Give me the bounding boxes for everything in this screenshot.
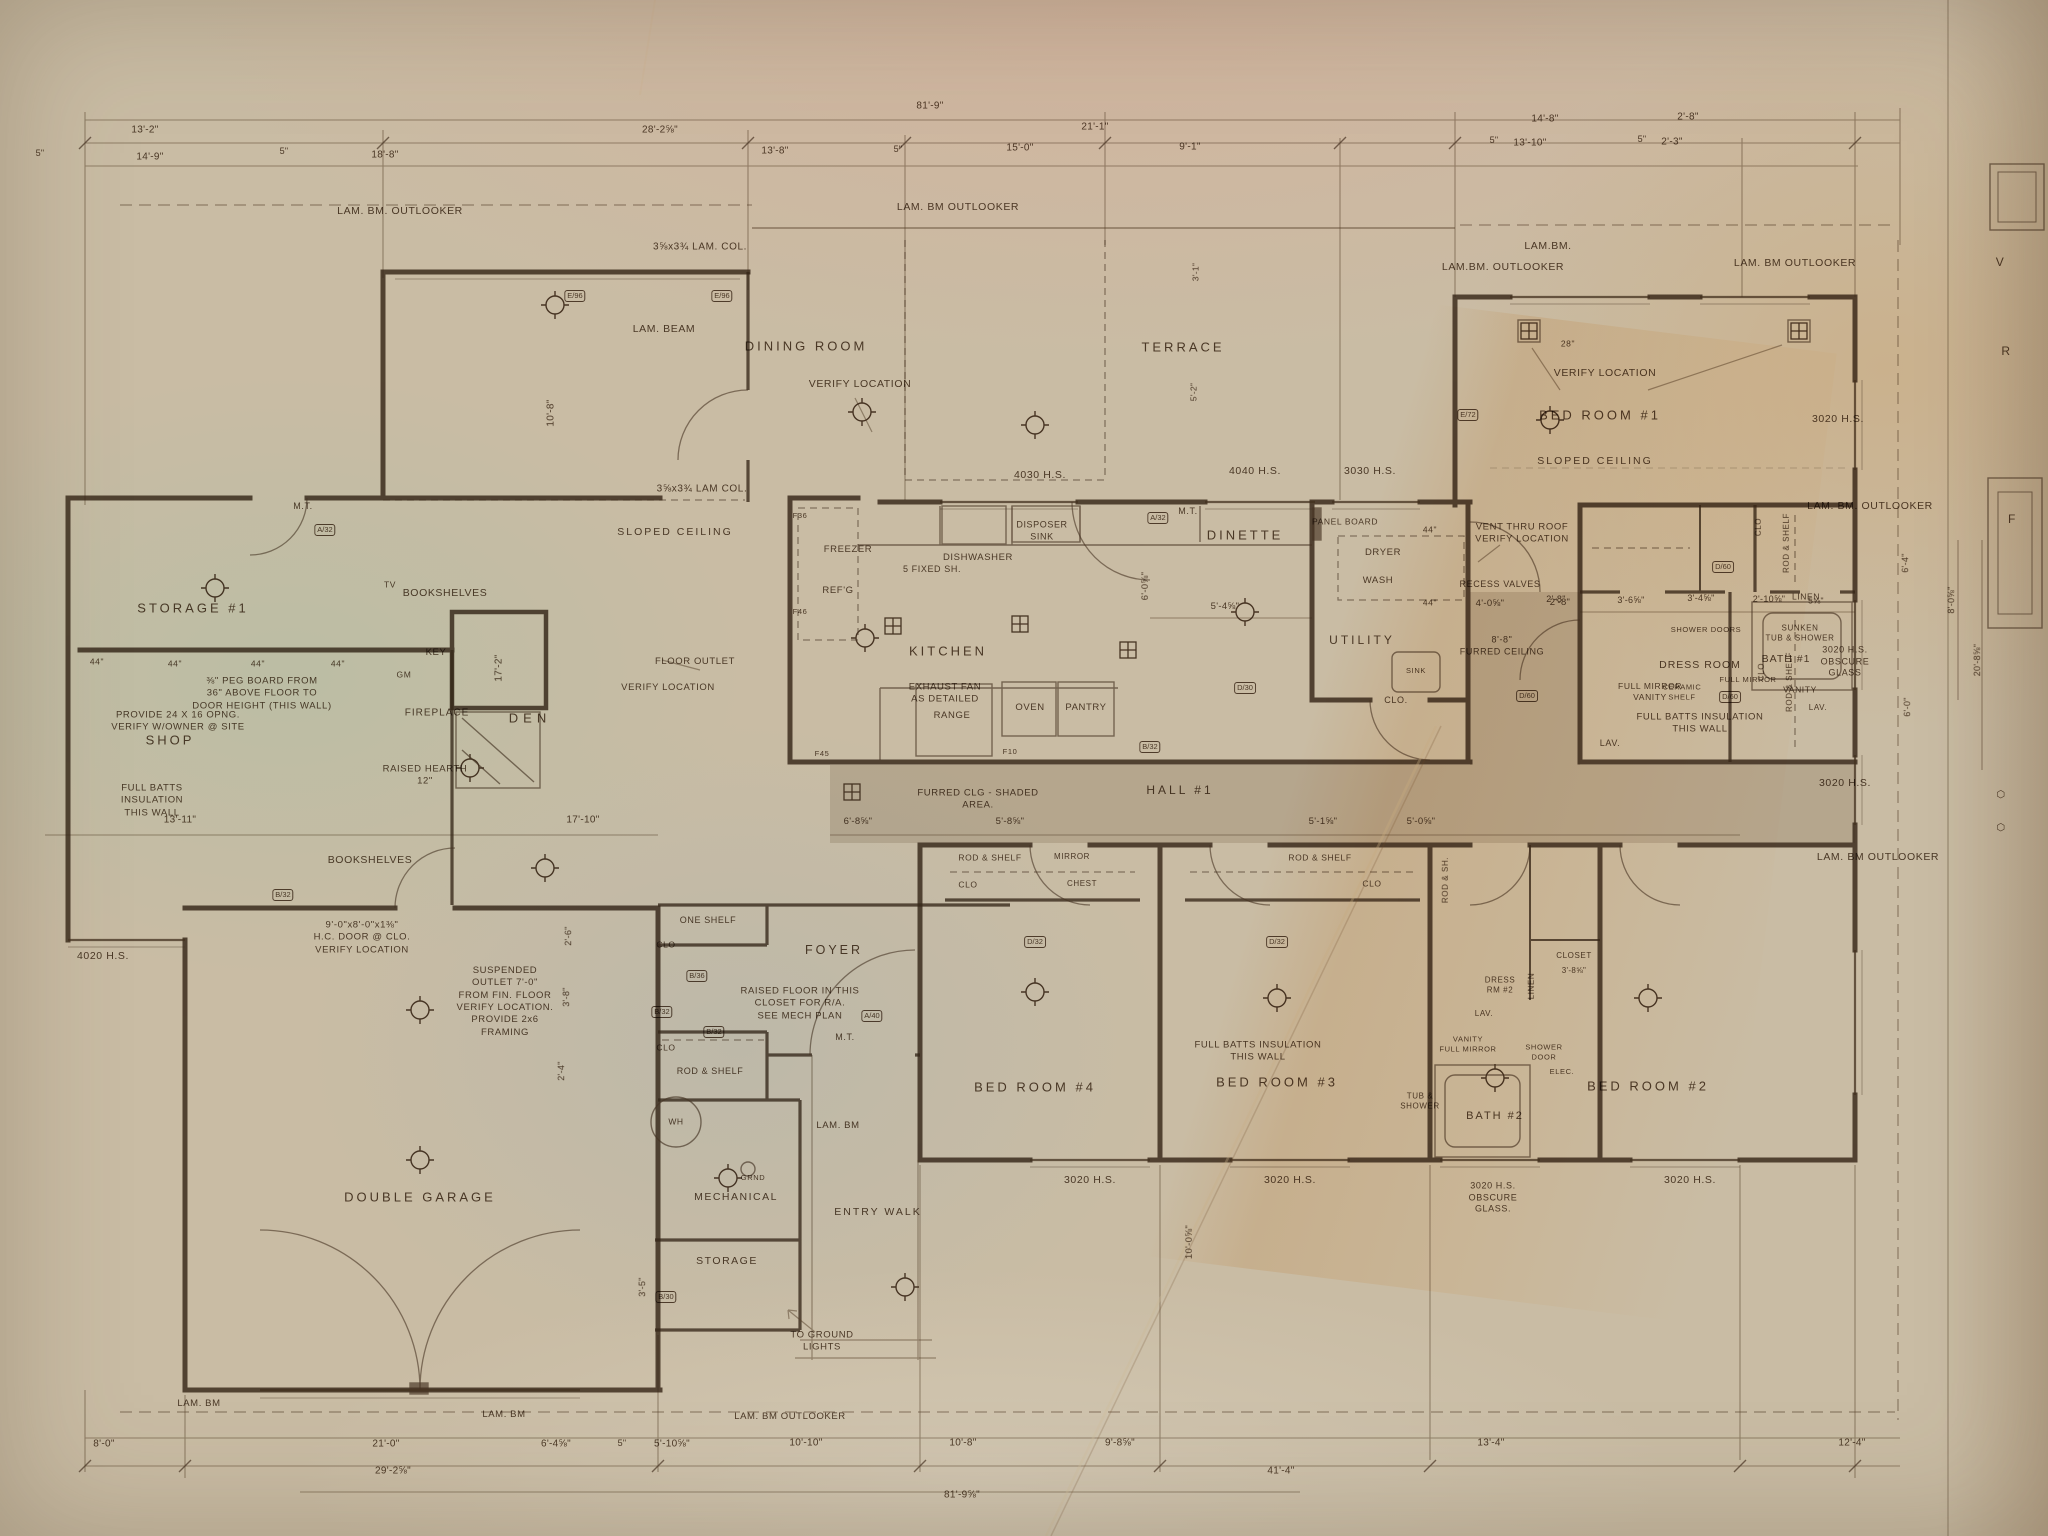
blueprint-sheet: 81'-9"13'-2"28'-2⅝"21'-1"14'-8"2'-8"14'-… [0, 0, 2048, 1536]
plan-label: CLO. [1384, 695, 1407, 707]
plan-label: LAM. BM [482, 1409, 525, 1421]
plan-label: FULL MIRROR [1719, 675, 1776, 685]
fixture-tag: D/60 [1516, 690, 1538, 702]
plan-label: FLOOR OUTLET [655, 656, 735, 668]
plan-label: CLO [656, 939, 675, 950]
plan-label: CLO [656, 1042, 675, 1053]
plan-label: M.T. [293, 501, 312, 513]
plan-label: ROD & SHELF [958, 852, 1021, 863]
plan-label: 2'-3" [1661, 136, 1682, 149]
plan-label: ONE SHELF [680, 915, 736, 927]
plan-label: 5'-10⅝" [654, 1438, 690, 1451]
fixture-tag: E/96 [711, 290, 732, 302]
fixture-tag: B/36 [686, 970, 707, 982]
fixture-tag: E/96 [564, 290, 585, 302]
plan-label: 3'-1" [1190, 263, 1201, 281]
plan-label: 21'-0" [372, 1438, 399, 1451]
plan-label: 10'-8" [545, 399, 558, 426]
plan-label: VERIFY LOCATION [809, 378, 912, 392]
room-label-storage1: STORAGE #1 [137, 601, 248, 618]
plan-label: RECESS VALVES [1460, 579, 1541, 591]
plan-label: 6'-8⅝" [844, 816, 873, 828]
room-label-shop: SHOP [146, 733, 195, 750]
plan-label: VENT THRU ROOF VERIFY LOCATION [1475, 522, 1569, 547]
plan-label: ⬡ [1996, 822, 2005, 835]
plan-label: 5'-0⅝" [1407, 816, 1436, 828]
fixture-tag: D/60 [1719, 691, 1741, 703]
plan-label: FULL BATTS INSULATION THIS WALL [1195, 1040, 1322, 1065]
plan-label: 4040 H.S. [1229, 465, 1281, 479]
plan-label: CLOSET [1556, 951, 1592, 961]
plan-label: REF'G [822, 585, 853, 597]
plan-label: 3'-5" [637, 1277, 649, 1296]
room-label-utility: UTILITY [1329, 633, 1395, 649]
plan-label: 28" [1561, 338, 1575, 349]
plan-label: 5'-2" [1188, 383, 1199, 401]
plan-label: MIRROR [1054, 852, 1090, 862]
plan-label: VERIFY LOCATION [621, 682, 715, 694]
water-heater-label: WH [668, 1116, 683, 1127]
plan-label: CLO [958, 879, 977, 890]
plan-label: LAM.BM. OUTLOOKER [1442, 261, 1564, 275]
plan-label: SUNKEN TUB & SHOWER [1766, 624, 1835, 645]
plan-label: VANITY FULL MIRROR [1439, 1034, 1496, 1054]
plan-label: 4020 H.S. [77, 950, 129, 964]
plan-label: FREEZER [824, 544, 873, 556]
dim-overall-bottom: 81'-9⅝" [944, 1489, 980, 1502]
plan-label: DRESS RM #2 [1485, 976, 1516, 997]
plan-label: PANTRY [1065, 702, 1106, 714]
room-label-bath1: BATH #1 [1762, 653, 1811, 667]
plan-label: 5'-8⅝" [996, 816, 1025, 828]
plan-label: ROD & SHELF [1782, 513, 1792, 573]
plan-label: BOOKSHELVES [328, 854, 413, 868]
plan-label: PROVIDE 24 X 16 OPNG. VERIFY W/OWNER @ S… [111, 710, 244, 735]
plan-label: F36 [793, 511, 808, 521]
plan-label: DISHWASHER [943, 552, 1013, 564]
plan-label: LAM. BM. OUTLOOKER [1807, 500, 1933, 514]
plan-label: 6'-4" [1900, 553, 1912, 572]
plan-label: 6'-0" [1902, 697, 1914, 716]
fixture-tag: B/32 [1139, 741, 1160, 753]
plan-label: OVEN [1015, 702, 1044, 714]
plan-label: 14'-9" [136, 151, 163, 164]
plan-label: BOOKSHELVES [403, 587, 488, 601]
plan-label: ELEC. [1550, 1067, 1575, 1077]
plan-label: 12'-4" [1838, 1437, 1865, 1450]
plan-label: 5" [1638, 134, 1647, 146]
plan-label: SLOPED CEILING [1537, 455, 1653, 469]
room-label-bath2: BATH #2 [1466, 1109, 1524, 1123]
plan-label: 3020 H.S. [1264, 1174, 1316, 1188]
plan-label: 5" [618, 1438, 627, 1450]
plan-label: FULL BATTS INSULATION THIS WALL [1637, 712, 1764, 737]
plan-label: ROD & SH. [1441, 857, 1451, 903]
plan-label: TUB & SHOWER [1400, 1092, 1440, 1113]
plan-label: 3020 H.S. [1812, 413, 1864, 427]
plan-label: 17'-10" [566, 814, 599, 827]
plan-label: ⬡ [1996, 789, 2005, 802]
plan-label: 44" [168, 658, 182, 669]
plan-label: 3'-4⅝" [1687, 593, 1714, 605]
plan-label: LINEN [1527, 973, 1537, 1000]
plan-label: 5'-1⅝" [1309, 816, 1338, 828]
plan-label: 3020 H.S. [1819, 777, 1871, 791]
plan-label: F45 [815, 749, 830, 759]
room-label-bedroom4: BED ROOM #4 [974, 1080, 1096, 1097]
plan-label: 15'-0" [1006, 142, 1033, 155]
plan-label: M.T. [835, 1032, 854, 1044]
fixture-tag: B/32 [272, 889, 293, 901]
plan-label: CERAMIC SHELF [1663, 682, 1702, 702]
plan-label: 5" [36, 148, 45, 160]
plan-label: 6'-0⅝" [1140, 572, 1152, 601]
plan-label: LAV. [1600, 738, 1620, 750]
plan-label: CHEST [1067, 879, 1097, 889]
fixture-tag: D/32 [1266, 936, 1288, 948]
plan-label: VANITY [1783, 684, 1817, 695]
plan-label: SUSPENDED OUTLET 7'-0" FROM FIN. FLOOR V… [457, 965, 554, 1039]
plan-label: WASH [1363, 575, 1394, 587]
plan-label: 8'-0⅝" [1946, 586, 1958, 613]
plan-label: F10 [1003, 747, 1018, 757]
note-lam-bm-outlooker: LAM. BM. OUTLOOKER [337, 205, 463, 219]
fixture-tag: A/32 [314, 524, 335, 536]
room-label-entrywalk: ENTRY WALK [834, 1206, 922, 1220]
plan-label: 13'-8" [761, 145, 788, 158]
plan-label: 5" [1490, 135, 1499, 147]
plan-label: M.T. [1178, 506, 1197, 518]
room-label-hall1: HALL #1 [1146, 783, 1213, 799]
fixture-tag: D/30 [1234, 682, 1256, 694]
plan-label: 10'-8" [949, 1437, 976, 1450]
room-label-kitchen: KITCHEN [909, 644, 987, 661]
plan-label: LAM. BM OUTLOOKER [1734, 257, 1856, 271]
plan-label: 14'-8" [1531, 113, 1558, 126]
plan-label: 2'-4" [556, 1061, 568, 1080]
fixture-tag: B/32 [651, 1006, 672, 1018]
room-label-dressroom: DRESS ROOM [1659, 659, 1741, 673]
room-label-foyer: FOYER [805, 942, 863, 958]
fixture-tag: D/60 [1712, 561, 1734, 573]
plan-label: F46 [793, 607, 808, 617]
plan-label: PANEL BOARD [1312, 516, 1378, 527]
room-label-bedroom2: BED ROOM #2 [1587, 1079, 1709, 1096]
plan-label: 3030 H.S. [1344, 465, 1396, 479]
dim-overall-top: 81'-9" [916, 100, 943, 113]
plan-label: CLO [1754, 518, 1764, 536]
plan-label: 13'-2" [131, 124, 158, 137]
plan-label: TO GROUND LIGHTS [790, 1330, 853, 1355]
plan-label: DISPOSER SINK [1016, 519, 1067, 542]
plan-label: 28'-2⅝" [642, 124, 678, 137]
plan-label: 10'-10" [789, 1437, 822, 1450]
fixture-tag: A/32 [1147, 512, 1168, 524]
plan-label: 3'-6⅝" [1617, 595, 1644, 607]
plan-label: 9'-0"x8'-0"x1⅜" H.C. DOOR @ CLO. VERIFY … [314, 919, 411, 956]
plan-label: 2'-6" [563, 926, 575, 945]
plan-label: RAISED FLOOR IN THIS CLOSET FOR R/A. SEE… [741, 985, 860, 1022]
plan-label: 17'-2" [493, 654, 506, 681]
plan-label: LAM. BM [177, 1398, 220, 1410]
plan-label: 13'-4" [1477, 1437, 1504, 1450]
plan-label: GRND [741, 1173, 765, 1183]
plan-label: 3'-8" [561, 987, 573, 1006]
plan-label: 4'-0⅝" [1476, 598, 1505, 610]
plan-label: LAM.BM. [1524, 240, 1571, 254]
plan-label: VERIFY LOCATION [1554, 367, 1657, 381]
plan-label: SLOPED CEILING [617, 526, 733, 540]
plan-label: F [2008, 512, 2016, 528]
plan-label: 2'-8" [1677, 111, 1698, 124]
room-label-garage: DOUBLE GARAGE [344, 1190, 496, 1207]
plan-label: RAISED HEARTH 12" [383, 764, 468, 789]
plan-label: 13'-10" [1513, 137, 1546, 150]
plan-label: 29'-2⅝" [375, 1465, 411, 1478]
plan-label: LAM. BM OUTLOOKER [734, 1411, 846, 1423]
plan-label: SHOWER DOORS [1671, 625, 1742, 635]
room-label-bedroom3: BED ROOM #3 [1216, 1075, 1338, 1092]
plan-label: 2'-10⅝" [1753, 594, 1786, 606]
plan-label: 21'-1" [1081, 121, 1108, 134]
plan-label: GM [397, 669, 412, 680]
fixture-tag: B/32 [703, 1026, 724, 1038]
plan-labels: 81'-9"13'-2"28'-2⅝"21'-1"14'-8"2'-8"14'-… [0, 0, 2048, 1536]
plan-label: LAV. [1809, 703, 1827, 713]
plan-label: SINK [1406, 666, 1426, 676]
plan-label: 3020 H.S. [1664, 1174, 1716, 1188]
plan-label: 10'-0⅝" [1184, 1225, 1196, 1259]
fixture-tag: B/30 [655, 1291, 676, 1303]
plan-label: EXHAUST FAN AS DETAILED [909, 682, 981, 707]
plan-label: 5" [280, 146, 289, 158]
plan-label: 20'-8⅝" [1972, 644, 1984, 677]
plan-label: 44" [251, 658, 265, 669]
plan-label: DRYER [1365, 547, 1401, 559]
plan-label: 44" [90, 656, 104, 667]
room-label-mechanical: MECHANICAL [694, 1191, 778, 1205]
plan-label: 5'-4⅝" [1211, 601, 1240, 613]
plan-label: 6'-4⅝" [541, 1438, 571, 1451]
plan-label: ROD & SHELF [1288, 852, 1351, 863]
plan-label: TV [384, 579, 396, 590]
plan-label: 44" [1423, 524, 1437, 535]
plan-label: V [1996, 255, 2005, 271]
plan-label: FULL BATTS INSULATION THIS WALL [121, 782, 183, 819]
plan-label: FURRED CLG - SHADED AREA. [917, 788, 1038, 813]
room-label-terrace: TERRACE [1141, 340, 1224, 357]
room-label-dining: DINING ROOM [745, 339, 868, 356]
plan-label: RANGE [934, 710, 971, 722]
fixture-tag: E/72 [1457, 409, 1478, 421]
plan-label: ROD & SHELF [677, 1066, 744, 1078]
plan-label: 3⅝x3¾ LAM. COL. [653, 241, 747, 254]
plan-label: 5 FIXED SH. [903, 564, 961, 576]
plan-label: LAM. BM [816, 1120, 859, 1132]
plan-label: LAM. BM OUTLOOKER [1817, 851, 1939, 865]
plan-label: SHOWER DOOR [1525, 1042, 1562, 1062]
plan-label: ⅜" PEG BOARD FROM 36" ABOVE FLOOR TO DOO… [192, 675, 331, 712]
plan-label: 3020 H.S. OBSCURE GLASS [1821, 644, 1870, 679]
plan-label: LAM. BM OUTLOOKER [897, 201, 1019, 215]
plan-label: LAM. BEAM [633, 323, 696, 337]
plan-label: 3020 H.S. OBSCURE GLASS. [1469, 1180, 1518, 1215]
plan-label: LAV. [1475, 1009, 1493, 1019]
plan-label: 41'-4" [1267, 1465, 1294, 1478]
plan-label: LINEN [1792, 591, 1820, 602]
plan-label: R [2001, 344, 2010, 360]
room-label-bedroom1: BED ROOM #1 [1539, 408, 1661, 425]
plan-label: 3'-8⅝" [1562, 966, 1586, 976]
plan-label: KEY [426, 647, 447, 659]
plan-label: 2'-8" [1546, 594, 1565, 606]
plan-label: 18'-8" [371, 149, 398, 162]
plan-label: FIREPLACE [405, 707, 470, 720]
plan-label: 9'-1" [1179, 141, 1200, 154]
plan-label: 44" [1423, 597, 1437, 608]
plan-label: CLO [1362, 878, 1381, 889]
plan-label: 5" [894, 144, 903, 156]
plan-label: 3⅝x3¾ LAM COL. [657, 483, 748, 496]
plan-label: 44" [331, 658, 345, 669]
room-label-dinette: DINETTE [1207, 528, 1284, 545]
plan-label: 8'-0" [93, 1438, 114, 1451]
room-label-den: DEN [509, 711, 551, 728]
plan-label: 8'-8" FURRED CEILING [1460, 634, 1544, 657]
plan-label: 3020 H.S. [1064, 1174, 1116, 1188]
plan-label: 9'-8⅝" [1105, 1437, 1135, 1450]
fixture-tag: D/32 [1024, 936, 1046, 948]
plan-label: 4030 H.S. [1014, 469, 1066, 483]
fixture-tag: A/40 [861, 1010, 882, 1022]
room-label-storage2: STORAGE [696, 1255, 758, 1269]
